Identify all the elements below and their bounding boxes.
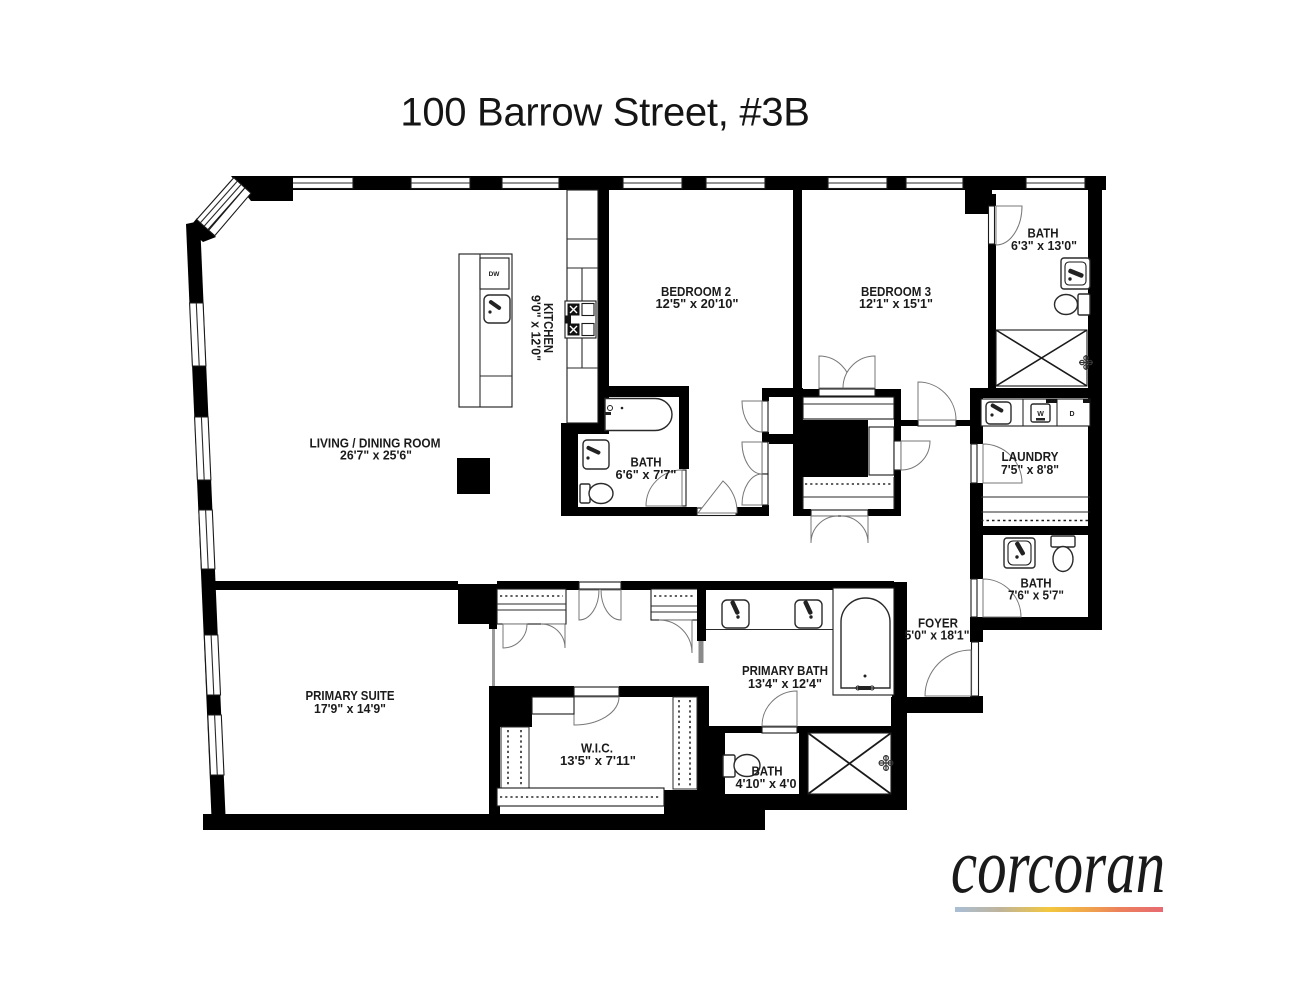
svg-text:12'1" x 15'1": 12'1" x 15'1" [859,296,933,311]
svg-text:7'5" x 8'8": 7'5" x 8'8" [1001,462,1059,477]
svg-text:6'6" x 7'7": 6'6" x 7'7" [616,467,677,482]
svg-text:17'9" x 14'9": 17'9" x 14'9" [314,701,386,716]
svg-text:7'6" x 5'7": 7'6" x 5'7" [1008,588,1064,603]
svg-text:4'10" x 4'0: 4'10" x 4'0 [736,776,797,791]
svg-text:9'0" x 12'0": 9'0" x 12'0" [529,295,544,361]
svg-text:12'5" x 20'10": 12'5" x 20'10" [656,296,739,311]
svg-text:corcoran: corcoran [951,824,1165,909]
svg-text:6'3" x 13'0": 6'3" x 13'0" [1011,238,1077,253]
svg-text:13'5" x 7'11": 13'5" x 7'11" [560,753,636,768]
svg-text:100 Barrow Street, #3B: 100 Barrow Street, #3B [400,91,809,135]
svg-text:D: D [1069,411,1074,418]
svg-text:5'0" x 18'1": 5'0" x 18'1" [905,628,970,643]
svg-text:13'4" x 12'4": 13'4" x 12'4" [748,676,822,691]
svg-text:DW: DW [489,271,501,278]
svg-text:26'7" x 25'6": 26'7" x 25'6" [340,448,412,463]
svg-text:W: W [1037,411,1044,418]
